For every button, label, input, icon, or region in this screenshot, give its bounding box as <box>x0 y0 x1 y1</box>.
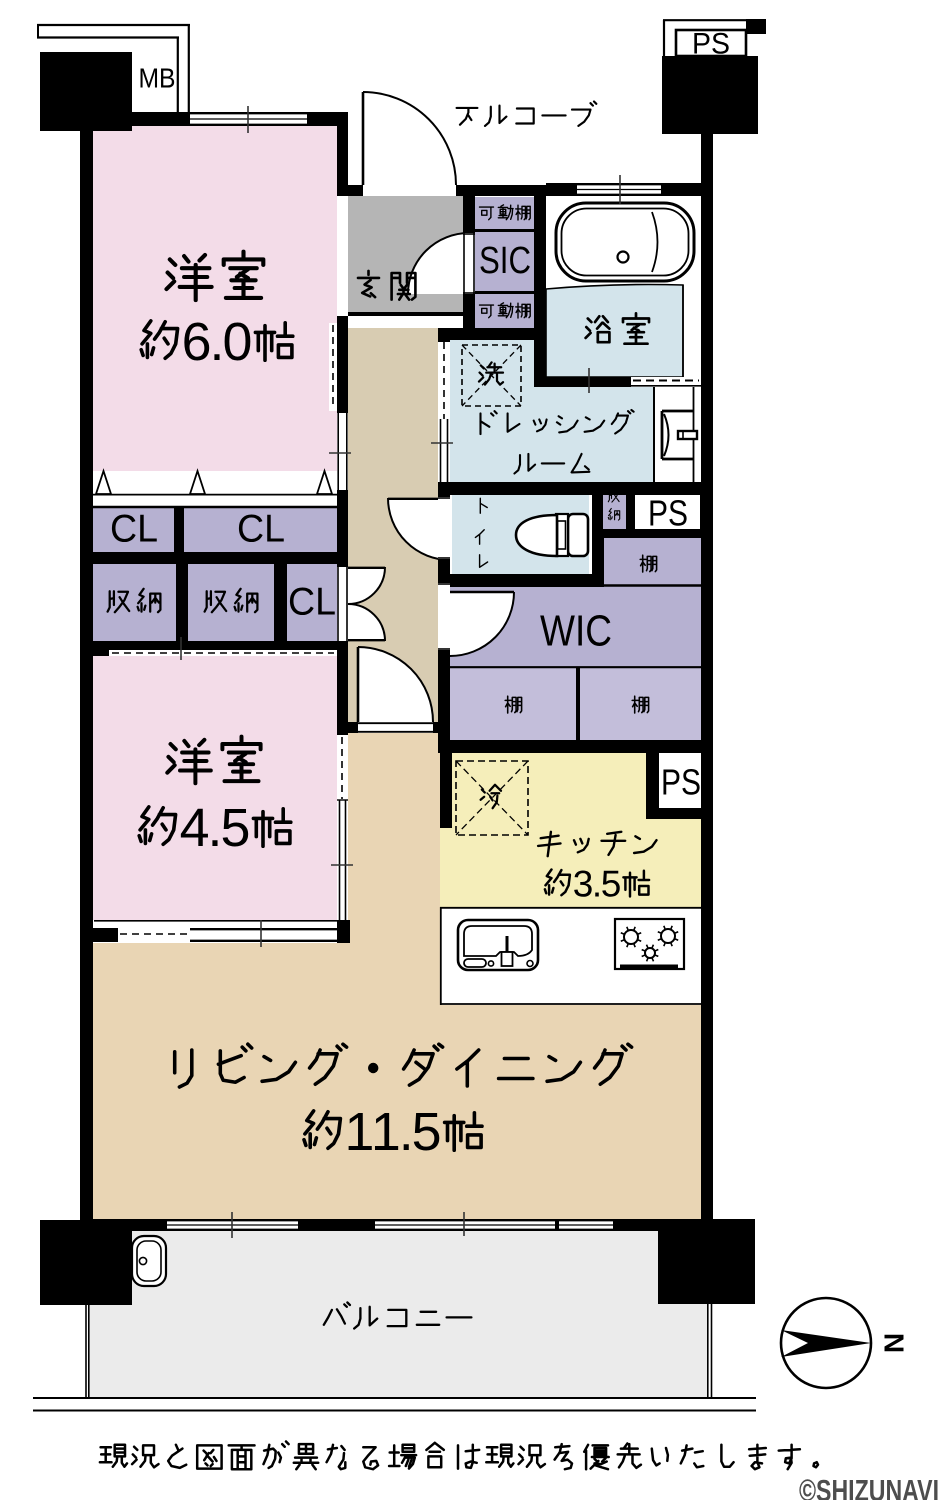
svg-text:5: 5 <box>412 1102 442 1162</box>
svg-text:N: N <box>879 1333 910 1353</box>
svg-text:5: 5 <box>220 798 250 858</box>
svg-text:WIC: WIC <box>540 607 612 656</box>
svg-text:PS: PS <box>661 762 701 803</box>
svg-text:1: 1 <box>371 1102 401 1162</box>
svg-text:4: 4 <box>180 798 210 858</box>
svg-text:PS: PS <box>648 493 688 534</box>
svg-text:CL: CL <box>237 508 285 551</box>
svg-text:CL: CL <box>110 508 158 551</box>
svg-text:SIC: SIC <box>479 240 531 282</box>
svg-text:6: 6 <box>182 312 212 372</box>
svg-text:MB: MB <box>139 63 176 94</box>
svg-text:©SHIZUNAVI: ©SHIZUNAVI <box>799 1473 939 1500</box>
svg-text:0: 0 <box>222 312 252 372</box>
svg-text:5: 5 <box>601 864 622 905</box>
svg-text:CL: CL <box>288 581 336 624</box>
svg-text:3: 3 <box>573 864 594 905</box>
svg-text:PS: PS <box>692 28 730 61</box>
